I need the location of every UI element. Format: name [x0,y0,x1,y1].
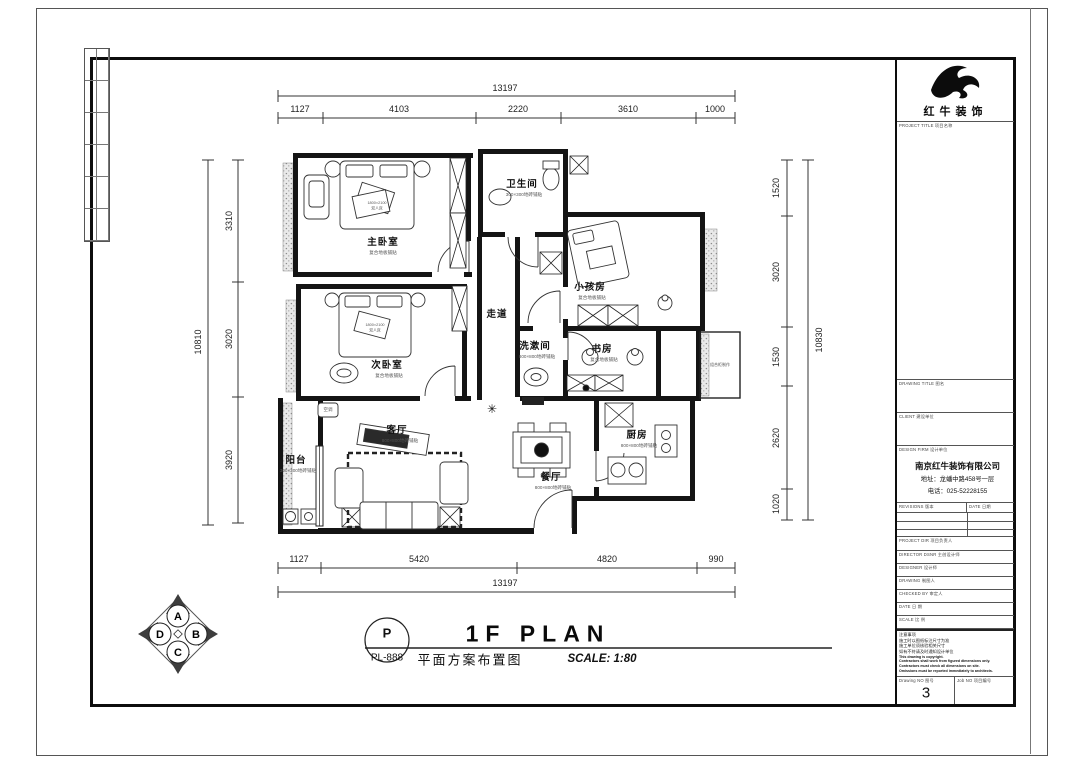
scale-cell: SCALE 比 例 [897,616,1014,629]
dim-top-3: 2220 [508,104,528,114]
compass: A B C D [138,594,218,674]
drawing-cell: DRAWING 制图人 [897,577,1014,590]
drawing-label: DRAWING 制图人 [899,578,935,583]
dim-bot-total: 13197 [492,578,517,588]
drawing-no-label: Drawing NO 图号 [899,678,934,683]
floor-plan-geometry: A B C D [90,57,895,707]
compass-b: B [192,629,200,641]
room-balcony: 阳台 [285,452,306,466]
room-washroom: 洗漱间 [519,338,551,352]
ac-label: 空调 [324,407,333,413]
footer-title-en: 1F PLAN [466,621,611,648]
dim-bot-4: 990 [708,554,723,564]
firm-name: 南京红牛装饰有限公司 [899,460,1016,472]
dim-right-4: 2620 [771,428,781,448]
room-dining: 餐厅 [540,469,561,483]
dim-right-total: 10830 [814,327,824,352]
compass-a: A [174,611,182,623]
balcony-slider [316,446,323,526]
dim-right-3: 1530 [771,347,781,367]
designer-label: DESIGNER 设计师 [899,565,937,570]
drawing-title-label: DRAWING TITLE 图名 [899,381,944,386]
revisions-label: REVISIONS 版本 [899,504,934,509]
room-study: 书房 [591,341,612,355]
compass-d: D [156,629,164,641]
floor-plan: A B C D 13197 1127 4103 2220 3610 1000 1… [90,57,895,707]
plant-symbol: ✳ [487,402,497,416]
client-cell: CLIENT 建设单位 [897,413,1014,446]
dim-left-total: 10810 [193,329,203,354]
room-kitchen-finish: 800×800地砖铺贴 [621,443,657,449]
room-bathroom-finish: 300×300地砖铺贴 [506,192,542,198]
compass-c: C [174,647,182,659]
dim-right-1: 1520 [771,178,781,198]
job-no-label: Job NO 项目编号 [957,678,991,683]
design-firm-cell: DESIGN FIRM 设计单位 南京红牛装饰有限公司 地址：龙蟠中路458号一… [897,446,1014,503]
room-kitchen: 厨房 [626,427,647,441]
dim-left-1: 3310 [224,211,234,231]
firm-phone: 电话：025-52228155 [899,486,1016,495]
bed2-type-note: 双人床 [369,329,380,334]
room-balcony-finish: 300×300地砖铺贴 [280,468,316,474]
bed-type-note: 双人床 [371,207,382,212]
dim-top-2: 4103 [389,104,409,114]
director-label: DIRECTOR DSNR 主创设计师 [899,552,960,557]
note-7: Omissions must be reported immediately t… [899,669,1012,674]
notes-cell: 注意事项 施工时以图纸标注尺寸为准 施工单位须核验相关尺寸 如有不符请及时通知设… [897,629,1014,677]
room-master-finish: 复合地板铺贴 [369,250,397,256]
room-second-bedroom: 次卧室 [371,357,403,371]
date-label: DATE 日 期 [899,604,922,609]
project-title-label: PROJECT TITLE 项目名称 [899,123,952,128]
revision-date-label: DATE 日期 [969,504,991,509]
room-washroom-finish: 800×800地砖铺贴 [519,354,555,360]
footer-title-cn: 平面方案布置图 [417,650,522,669]
room-kids-finish: 复合地板铺贴 [578,295,606,301]
project-title-cell: PROJECT TITLE 项目名称 [897,122,1014,380]
number-cell: Drawing NO 图号 3 Job NO 项目编号 [897,677,1014,704]
room-study-finish: 复合地板铺贴 [590,357,618,363]
drawing-sheet: A B C D 13197 1127 4103 2220 3610 1000 1… [0,0,1080,762]
footer-sheet-code: PL-888 [371,653,403,664]
logo-cell: 红牛装饰 [897,57,1014,122]
bed2-size-note: 1800×2100 [365,323,384,327]
company-logo-text: 红牛装饰 [897,103,1014,119]
client-label: CLIENT 建设单位 [899,414,934,419]
project-dir-label: PROJECT DIR 项目负责人 [899,538,952,543]
dim-bot-2: 5420 [409,554,429,564]
room-living-finish: 800×800地砖铺贴 [382,438,418,444]
dim-bot-3: 4820 [597,554,617,564]
sheet-margin-line [1030,8,1031,754]
project-dir-cell: PROJECT DIR 项目负责人 [897,537,1014,551]
checked-cell: CHECKED BY 审定人 [897,590,1014,603]
date-cell: DATE 日 期 [897,603,1014,616]
revisions-cell: REVISIONS 版本 DATE 日期 [897,503,1014,537]
room-living: 客厅 [386,422,407,436]
footer-scale: SCALE: 1:80 [567,653,636,665]
dim-left-3: 3920 [224,450,234,470]
dim-right-5: 1020 [771,494,781,514]
drawing-title-cell: DRAWING TITLE 图名 [897,380,1014,413]
design-firm-label: DESIGN FIRM 设计单位 [899,447,948,452]
footer-symbol-letter: P [383,626,392,641]
title-block: 红牛装饰 PROJECT TITLE 项目名称 DRAWING TITLE 图名… [897,57,1014,704]
dim-right-2: 3020 [771,262,781,282]
dim-top-4: 3610 [618,104,638,114]
room-dining-finish: 800×800地砖铺贴 [535,485,571,491]
director-cell: DIRECTOR DSNR 主创设计师 [897,551,1014,564]
cabinet-label: 组合柜制作 [710,362,730,368]
firm-address: 地址：龙蟠中路458号一层 [899,474,1016,483]
designer-cell: DESIGNER 设计师 [897,564,1014,577]
room-master-bedroom: 主卧室 [367,234,399,248]
drawing-no-value: 3 [922,685,930,702]
bed-size-note: 1800×2100 [367,201,386,205]
dim-top-1: 1127 [290,104,309,114]
company-logo-icon [925,60,985,100]
dim-top-5: 1000 [705,104,725,114]
dim-left-2: 3020 [224,329,234,349]
dim-top-total: 13197 [492,83,517,93]
room-kids: 小孩房 [574,279,606,293]
room-corridor: 走道 [486,306,507,320]
threshold [522,397,544,405]
dim-bot-1: 1127 [289,554,308,564]
room-bathroom: 卫生间 [506,176,538,190]
room-second-finish: 复合地板铺贴 [375,373,403,379]
checked-label: CHECKED BY 审定人 [899,591,943,596]
scale-label: SCALE 比 例 [899,617,925,622]
